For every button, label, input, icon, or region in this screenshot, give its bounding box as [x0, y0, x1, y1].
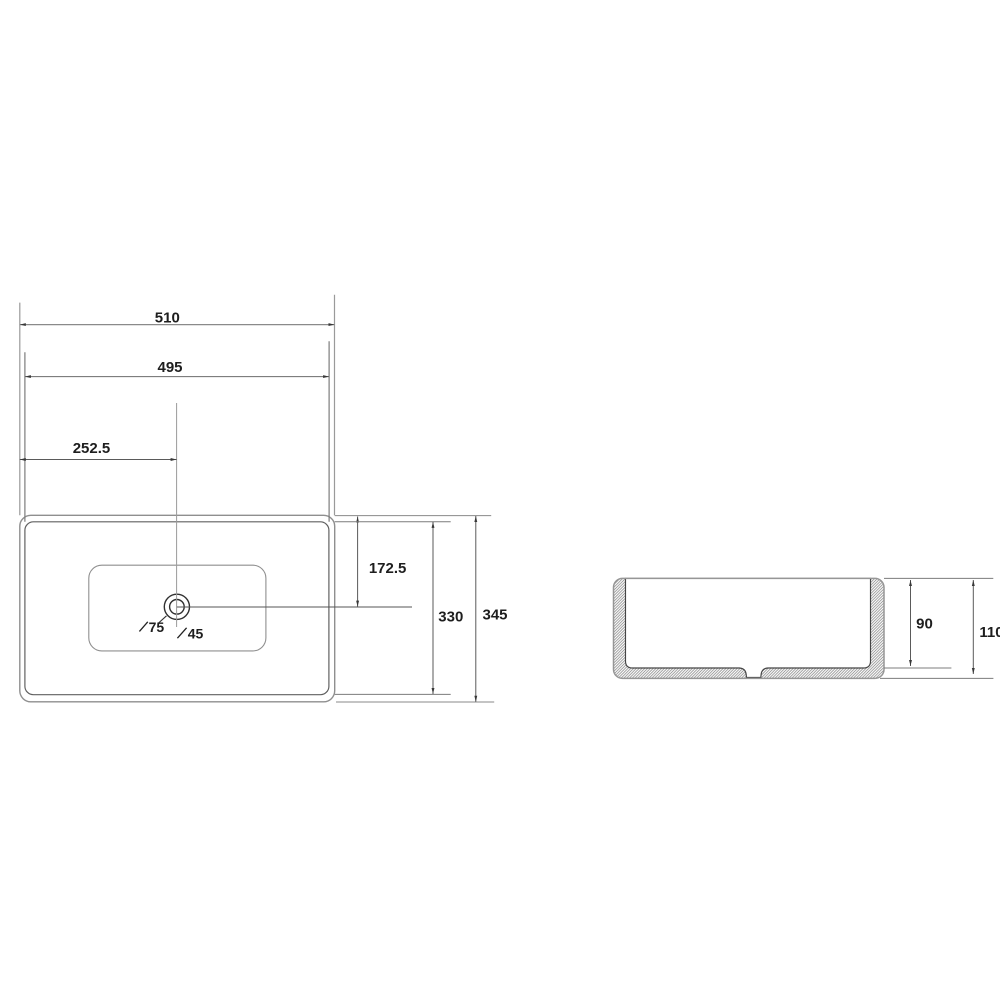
svg-text:252.5: 252.5: [73, 440, 111, 457]
svg-text:510: 510: [155, 309, 180, 326]
svg-text:45: 45: [188, 626, 204, 642]
svg-text:75: 75: [149, 619, 165, 635]
svg-text:495: 495: [157, 359, 182, 376]
svg-text:330: 330: [438, 608, 463, 625]
svg-text:172.5: 172.5: [369, 560, 407, 577]
svg-text:90: 90: [916, 615, 933, 632]
svg-text:345: 345: [482, 607, 507, 624]
svg-text:110: 110: [979, 624, 1000, 641]
